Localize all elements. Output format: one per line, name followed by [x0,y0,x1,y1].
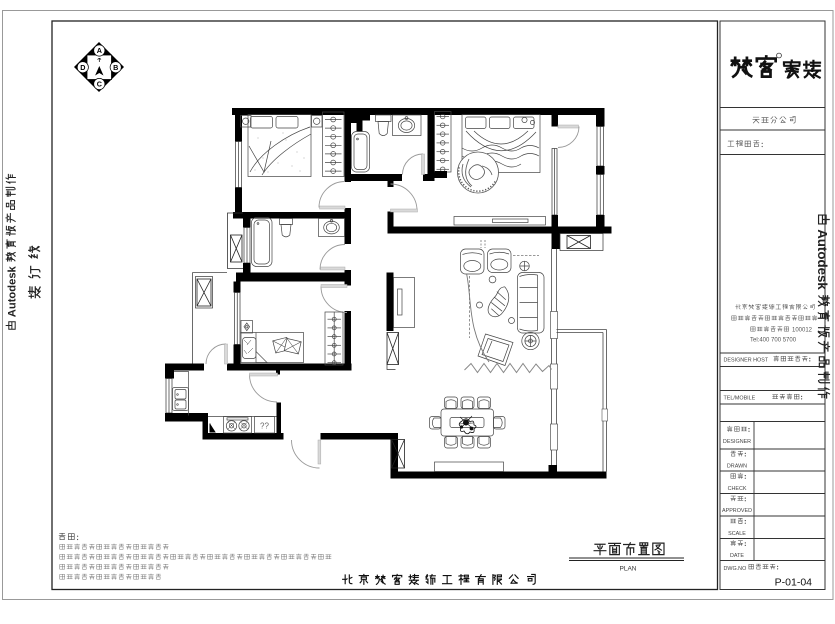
svg-text:APPROVED: APPROVED [722,508,752,514]
svg-text:A: A [97,46,102,55]
svg-text:DRAWN: DRAWN [727,464,747,470]
svg-text:100012: 100012 [792,328,813,334]
svg-text:SCALE: SCALE [728,531,746,537]
svg-text:D: D [80,63,85,72]
svg-text:P-01-04: P-01-04 [775,577,813,589]
svg-text:PLAN: PLAN [620,566,637,573]
svg-text:??: ?? [260,422,269,431]
svg-text:B: B [113,63,118,72]
svg-text:Autodesk: Autodesk [7,265,19,317]
svg-text:DATE: DATE [730,553,744,559]
svg-text:DWG.NO: DWG.NO [724,566,747,572]
svg-text:DESIGNER: DESIGNER [723,439,751,445]
svg-text:Autodesk: Autodesk [815,229,830,290]
svg-text:Tel:400 700 5700: Tel:400 700 5700 [750,338,797,344]
svg-text:CHECK: CHECK [728,486,747,492]
svg-text:DESIGNER HOST: DESIGNER HOST [724,358,769,364]
svg-text:TEL/MOBILE: TEL/MOBILE [724,396,756,402]
svg-text:C: C [97,80,102,89]
